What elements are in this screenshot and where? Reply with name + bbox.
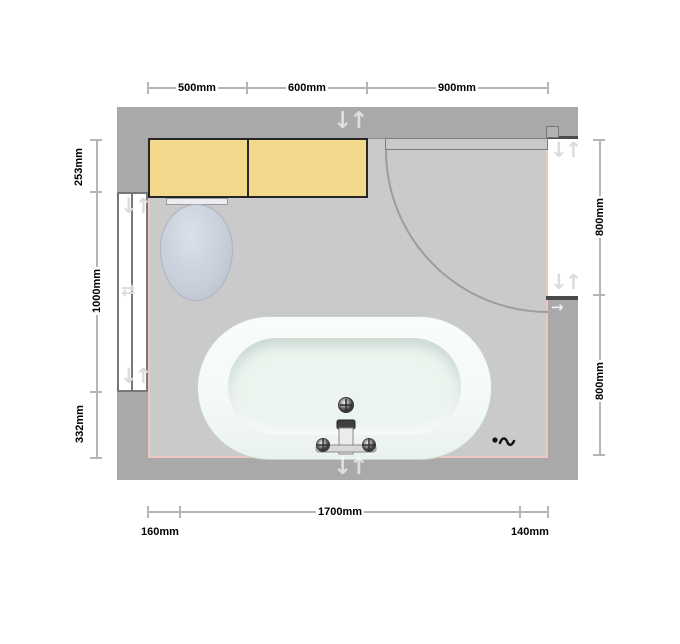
dim-label-bottom-main: 1700mm	[316, 506, 364, 518]
dim-tick	[547, 82, 549, 94]
door-move-icon[interactable]: →	[551, 300, 564, 315]
cabinet-section-600[interactable]	[249, 140, 366, 196]
dim-tick	[593, 454, 605, 456]
door-resize-bottom-icon[interactable]: ↓↑	[550, 272, 579, 293]
cabinet-section-500[interactable]	[150, 140, 249, 196]
window-resize-top-icon[interactable]: ↓↑	[120, 196, 149, 217]
dim-tick	[147, 506, 149, 518]
dim-label-right-2: 800mm	[594, 360, 606, 402]
dim-tick	[547, 506, 549, 518]
dim-tick	[179, 506, 181, 518]
dim-tick	[90, 191, 102, 193]
cabinet[interactable]	[148, 138, 368, 198]
window-move-icon[interactable]: ⇄	[121, 283, 135, 300]
door-resize-top-icon[interactable]: ↓↑	[550, 140, 579, 161]
dim-label-top-3: 900mm	[436, 82, 478, 94]
resize-handle-bottom-wall-icon[interactable]: ↓↑	[333, 456, 366, 479]
bathtub-faucet-icon	[310, 395, 382, 459]
dim-tick	[519, 506, 521, 518]
dim-label-left-2: 1000mm	[91, 267, 103, 315]
window-resize-bottom-icon[interactable]: ↓↑	[120, 366, 149, 387]
resize-handle-top-wall-icon[interactable]: ↓↑	[333, 110, 366, 133]
dim-tick	[593, 139, 605, 141]
dim-tick	[366, 82, 368, 94]
dim-label-top-2: 600mm	[286, 82, 328, 94]
dim-label-left-1: 253mm	[73, 146, 85, 188]
dim-label-bottom-right: 140mm	[509, 526, 551, 538]
dim-label-bottom-left: 160mm	[139, 526, 181, 538]
door-stop	[546, 126, 559, 138]
dim-tick	[90, 391, 102, 393]
dim-label-top-1: 500mm	[176, 82, 218, 94]
dim-line-right	[599, 140, 601, 455]
dim-tick	[147, 82, 149, 94]
wall-accessory-icon[interactable]	[491, 433, 517, 449]
dim-tick	[90, 139, 102, 141]
dim-label-left-3: 332mm	[74, 403, 86, 445]
dim-tick	[90, 457, 102, 459]
door-swing-arc	[385, 138, 552, 320]
door-leaf[interactable]	[385, 138, 548, 150]
dim-label-right-1: 800mm	[594, 196, 606, 238]
dim-tick	[246, 82, 248, 94]
floorplan-canvas: 500mm 600mm 900mm 253mm 1000mm 332mm 800…	[0, 0, 680, 644]
dim-tick	[593, 294, 605, 296]
